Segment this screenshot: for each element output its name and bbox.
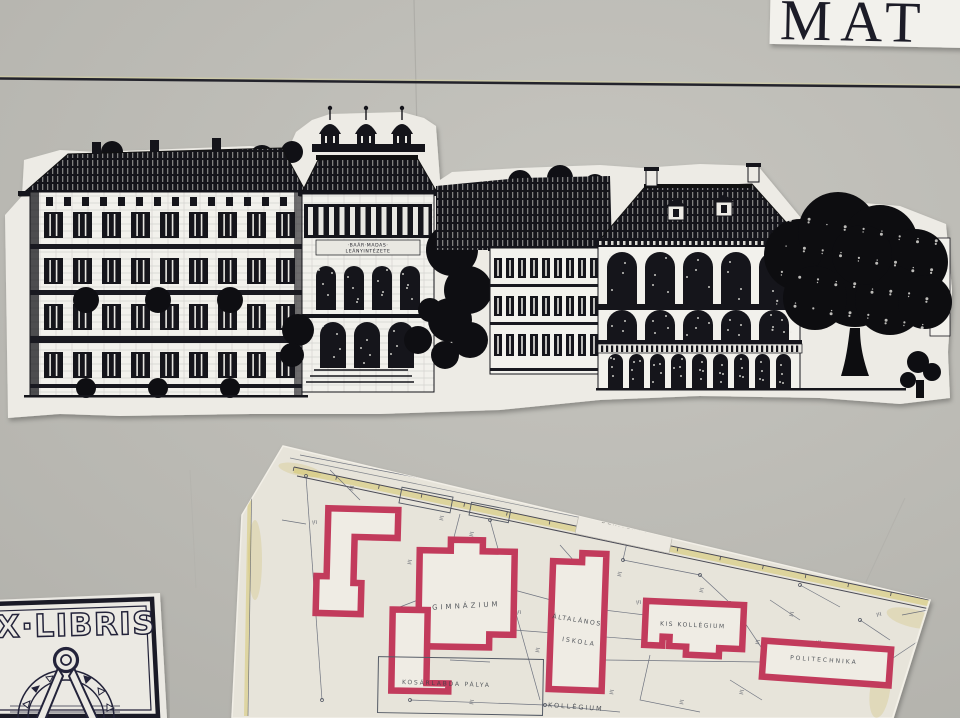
tower-roof [300, 156, 438, 196]
photo-stage: MAT [0, 0, 960, 718]
photo-svg: MAT [0, 0, 960, 718]
wall-line [0, 77, 960, 88]
building-gimnazium [418, 539, 515, 648]
tower-inscription-1: ·BAÁR·MADAS· [348, 242, 389, 249]
left-wing [18, 138, 310, 398]
exlibris-sheet: EX·LIBRIS [0, 593, 167, 718]
elevation-sheet: ·BAÁR·MADAS· LEÁNYINTÉZETE [5, 106, 952, 418]
exlibris-title: EX·LIBRIS [0, 605, 157, 646]
mat-sign: MAT [769, 0, 960, 56]
mid-roof-band [436, 176, 612, 250]
mid-wing [488, 246, 614, 374]
site-plan-sheet: DERÍTENDŐ GIMNÁZIUM ÁLTALÁNOS ISKOLA KOS… [232, 446, 939, 718]
mat-sign-text: MAT [779, 0, 930, 55]
tower-cupolas [312, 106, 425, 152]
